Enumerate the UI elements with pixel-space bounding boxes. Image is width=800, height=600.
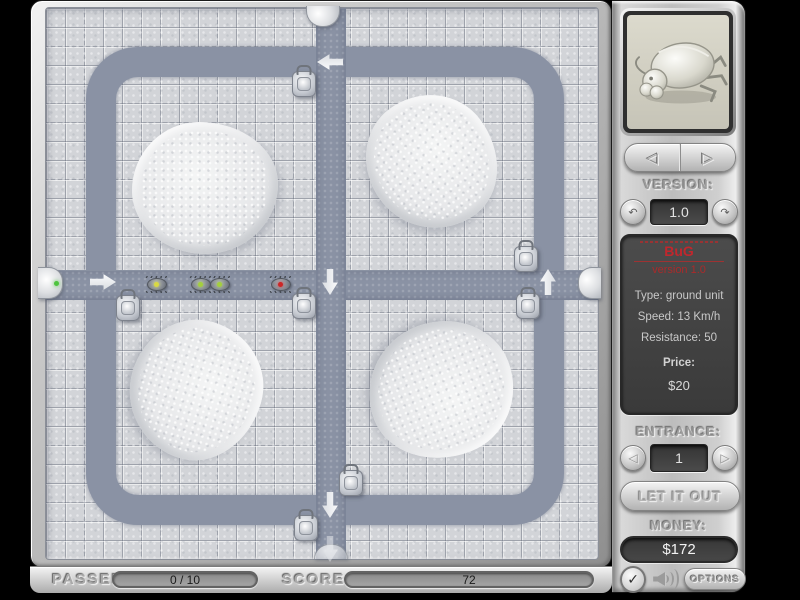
version-label: VERSION: — [612, 177, 745, 192]
version-up-icon: ↷ — [720, 206, 729, 219]
unit-resistance: Resistance: 50 — [622, 332, 736, 344]
next-unit-icon: ▷ — [702, 149, 714, 167]
check-icon: ✓ — [627, 571, 639, 588]
check-toggle-button[interactable]: ✓ — [620, 566, 646, 593]
bug-icon — [627, 15, 729, 129]
unit-nav: ◁ ▷ — [624, 143, 736, 172]
unit-preview-frame — [620, 8, 736, 136]
board-surface[interactable] — [45, 7, 599, 560]
unit-name: BuG — [622, 244, 736, 259]
entrance-next-icon: ▷ — [720, 451, 729, 465]
version-down-button[interactable]: ↶ — [620, 199, 646, 225]
entrance-prev-icon: ◁ — [628, 451, 637, 465]
volume-icon[interactable] — [653, 569, 678, 589]
entrance-stepper: ◁ 1 ▷ — [620, 444, 738, 472]
price-label: Price: — [622, 357, 736, 369]
version-value: 1.0 — [650, 199, 708, 225]
money-label: MONEY: — [612, 518, 745, 533]
unit-version: version 1.0 — [622, 264, 736, 276]
version-down-icon: ↶ — [628, 206, 637, 219]
unit-info-panel: BuG version 1.0 Type: ground unit Speed:… — [620, 234, 738, 415]
sidebar: ◁ ▷ VERSION: ↶ 1.0 ↷ BuG version 1.0 Typ… — [612, 0, 746, 593]
board-frame — [30, 0, 612, 568]
unit-preview-image — [627, 15, 729, 129]
money-display: $172 — [620, 536, 738, 563]
next-unit-button[interactable]: ▷ — [681, 144, 736, 171]
sidebar-bottom-row: ✓ OPTIONS — [612, 565, 746, 593]
entrance-value: 1 — [650, 444, 708, 472]
unit-preview-inner — [623, 11, 733, 133]
version-up-button[interactable]: ↷ — [712, 199, 738, 225]
passed-value: 0 / 10 — [112, 571, 258, 588]
entrance-prev-button[interactable]: ◁ — [620, 445, 646, 471]
sound-wave — [668, 569, 679, 589]
prev-unit-button[interactable]: ◁ — [625, 144, 681, 171]
path-vertical — [316, 8, 346, 559]
prev-unit-icon: ◁ — [646, 149, 658, 167]
options-button[interactable]: OPTIONS — [684, 568, 746, 590]
red-divider — [634, 261, 724, 262]
status-bar: PASSED 0 / 10 SCORE 72 — [30, 566, 612, 593]
entrance-label: ENTRANCE: — [612, 424, 745, 439]
entrance-next-button[interactable]: ▷ — [712, 445, 738, 471]
version-stepper: ↶ 1.0 ↷ — [620, 199, 738, 225]
unit-speed: Speed: 13 Km/h — [622, 311, 736, 323]
let-it-out-button[interactable]: LET IT OUT — [620, 481, 740, 511]
score-label: SCORE — [282, 571, 345, 588]
score-value: 72 — [344, 571, 594, 588]
price-value: $20 — [622, 378, 736, 393]
game-window: ◁ ▷ VERSION: ↶ 1.0 ↷ BuG version 1.0 Typ… — [0, 0, 800, 600]
unit-type: Type: ground unit — [622, 290, 736, 302]
